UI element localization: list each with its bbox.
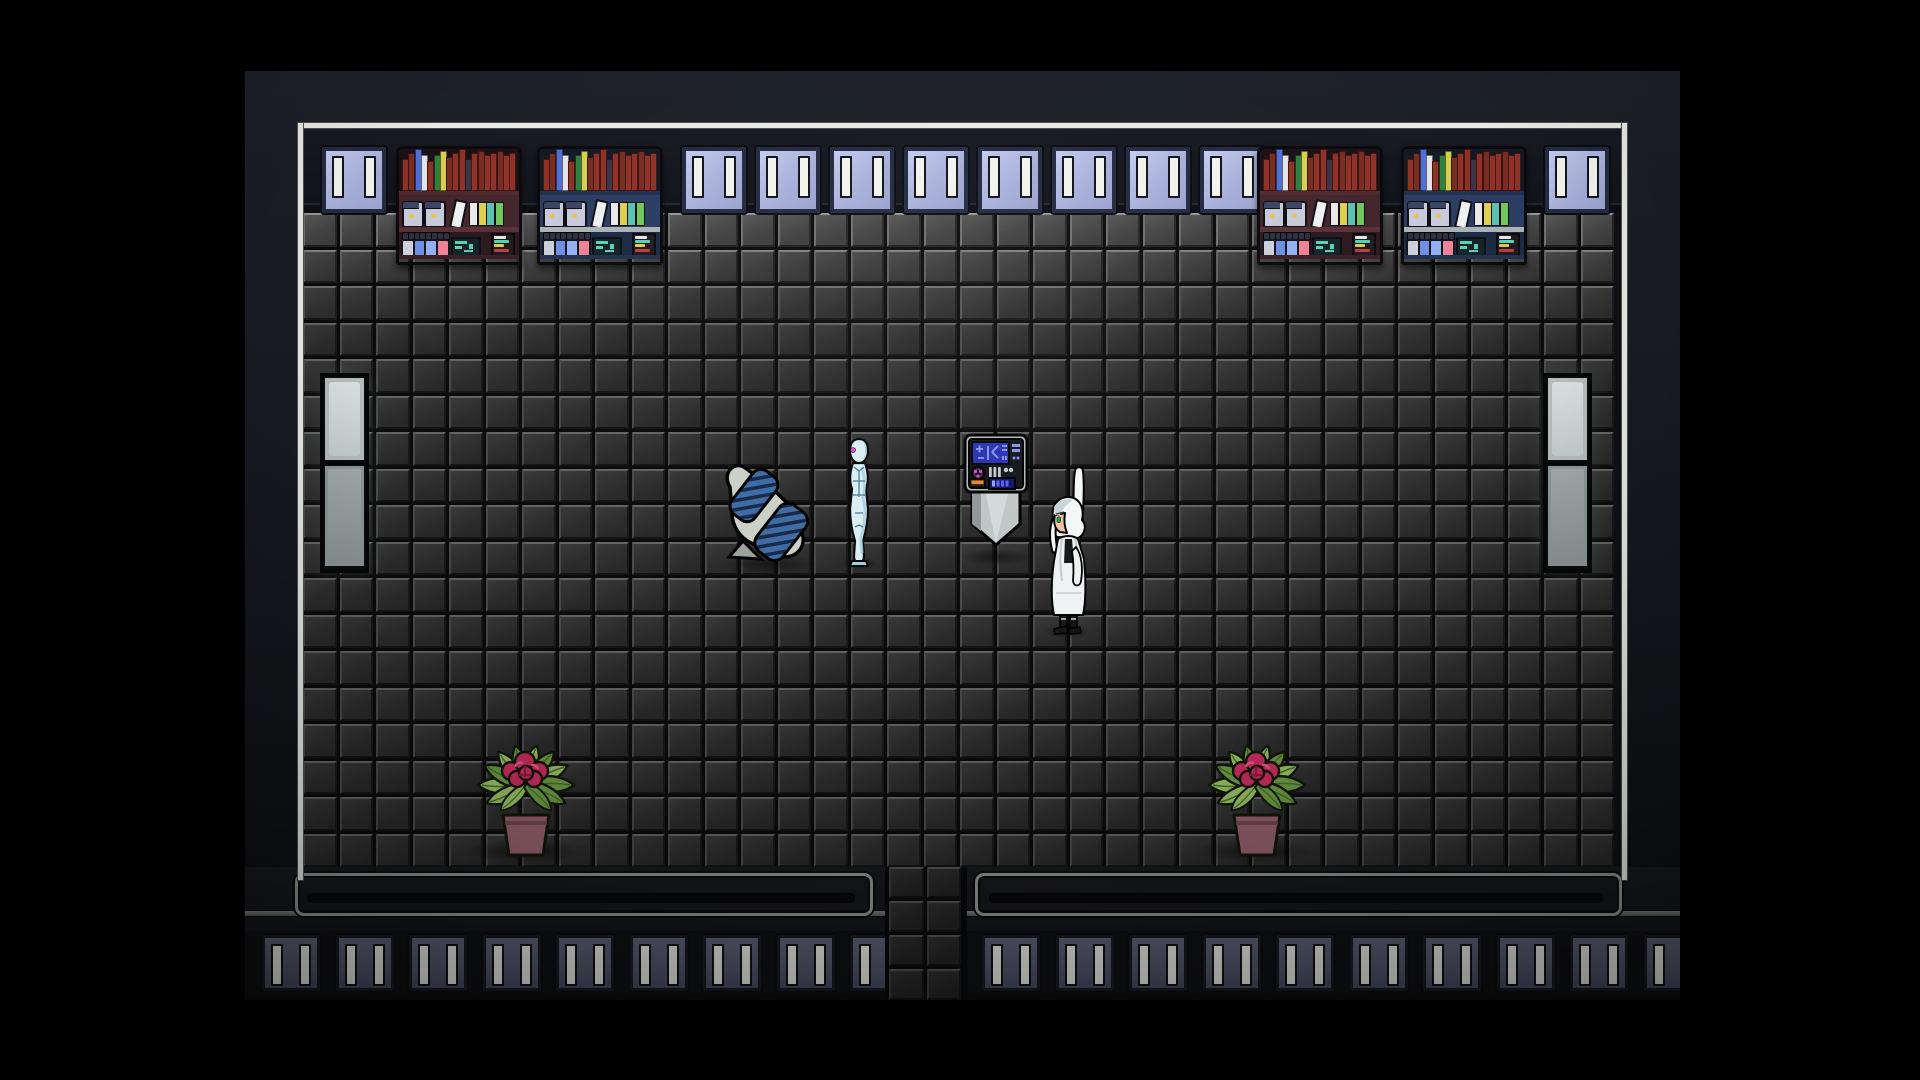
floor-tile: [778, 286, 812, 320]
panel-slit: [373, 944, 385, 986]
floor-tile: [1325, 359, 1359, 393]
floor-tile: [741, 323, 775, 357]
floor-tile: [1033, 797, 1067, 831]
floor-tile: [1581, 834, 1615, 868]
book-spine: [495, 202, 504, 226]
floor-tile: [851, 651, 885, 685]
shelf-middle-row: [1404, 195, 1524, 227]
floor-tile: [632, 469, 666, 503]
circuit-trace: [610, 244, 614, 249]
floor-tile: [887, 761, 921, 795]
floor-tile: [595, 615, 629, 649]
floor-tile: [1435, 432, 1469, 466]
floor-tile: [1581, 761, 1615, 795]
circuit-trace: [1330, 244, 1334, 249]
light-glow-dim: [328, 469, 361, 563]
floor-tile: [1179, 688, 1213, 722]
light-segment-dim: [1548, 466, 1587, 566]
leaning-book: [449, 199, 468, 230]
floor-tile: [303, 323, 337, 357]
circuit-trace: [1325, 250, 1334, 252]
floor-tile: [1508, 359, 1542, 393]
floor-tile: [522, 615, 556, 649]
floor-tile: [632, 724, 666, 758]
bookshelf-blue[interactable]: [1401, 146, 1527, 265]
window-slit: [1555, 156, 1567, 198]
floor-tile: [1508, 615, 1542, 649]
window-slit: [332, 156, 344, 198]
floor-tile: [1070, 688, 1104, 722]
floor-tile: [1362, 469, 1396, 503]
floor-tile: [449, 651, 483, 685]
floor-tile: [413, 615, 447, 649]
floor-tile: [486, 286, 520, 320]
floor-tile: [1289, 286, 1323, 320]
floor-tile: [1325, 578, 1359, 612]
specimen-jar: [543, 201, 565, 228]
circuit-board-item: [451, 237, 481, 257]
floor-tile: [1362, 688, 1396, 722]
floor-tile: [1106, 761, 1140, 795]
floor-tile: [814, 578, 848, 612]
recliner-chair[interactable]: [713, 451, 818, 569]
room-trim-left: [298, 123, 303, 880]
jar-label-dot: [431, 214, 436, 218]
floor-tile: [851, 396, 885, 430]
floor-tile: [705, 396, 739, 430]
floor-tile: [997, 688, 1031, 722]
floor-tile: [1106, 724, 1140, 758]
floor-tile: [668, 651, 702, 685]
floor-tile: [997, 797, 1031, 831]
jar-lid: [1264, 202, 1280, 209]
floor-tile: [668, 615, 702, 649]
leaning-book: [1310, 199, 1329, 230]
floor-tile: [668, 505, 702, 539]
floor-tile: [814, 761, 848, 795]
floor-tile: [376, 432, 410, 466]
floor-tile: [522, 542, 556, 576]
floor-tile: [559, 542, 593, 576]
floor-tile: [522, 651, 556, 685]
floor-tile: [889, 867, 924, 898]
floor-tile: [449, 286, 483, 320]
floor-tile: [814, 213, 848, 247]
floor-tile: [1435, 396, 1469, 430]
floor-tile: [1143, 505, 1177, 539]
floor-tile: [1435, 688, 1469, 722]
floor-tile: [1106, 651, 1140, 685]
panel-slit: [271, 944, 283, 986]
floor-tile: [1289, 615, 1323, 649]
floor-tile: [632, 542, 666, 576]
floor-tile: [522, 323, 556, 357]
floor-tile: [559, 651, 593, 685]
baseboard-slat-panel: [556, 935, 614, 991]
floor-tile: [559, 615, 593, 649]
panel-slit: [1607, 944, 1619, 986]
floor-tile: [924, 432, 958, 466]
floor-tile: [303, 615, 337, 649]
floor-tile: [1033, 761, 1067, 795]
stack-strip: [1355, 236, 1367, 239]
floor-tile: [1508, 505, 1542, 539]
book-spine: [1370, 153, 1377, 191]
floor-tile: [741, 213, 775, 247]
panel-slit: [1653, 944, 1665, 986]
window-slit: [914, 156, 926, 198]
floor-tile: [303, 286, 337, 320]
floor-tile: [486, 542, 520, 576]
floor-tile: [1581, 286, 1615, 320]
book-spine: [1356, 202, 1365, 226]
floor-tile: [705, 359, 739, 393]
floor-tile: [1216, 469, 1250, 503]
baseboard-slat-panel: [1570, 935, 1628, 991]
floor-tile: [1581, 578, 1615, 612]
floor-tile: [1033, 286, 1067, 320]
circuit-board-item: [1456, 237, 1486, 257]
floor-tile: [559, 688, 593, 722]
floor-tile: [1143, 213, 1177, 247]
panel-slit: [1093, 944, 1105, 986]
floor-tile: [778, 688, 812, 722]
floor-tile: [449, 359, 483, 393]
stack-strip: [494, 244, 504, 247]
floor-tile: [1508, 286, 1542, 320]
floor-tile: [1289, 505, 1323, 539]
floor-tile: [960, 250, 994, 284]
circuit-trace: [464, 250, 473, 252]
floor-tile: [413, 323, 447, 357]
floor-tile: [741, 396, 775, 430]
floor-tile: [1544, 323, 1578, 357]
floor-tile: [705, 688, 739, 722]
floor-tile: [1143, 469, 1177, 503]
floor-tile: [413, 797, 447, 831]
panel-slit: [565, 944, 577, 986]
floor-tile: [1252, 615, 1286, 649]
floor-tile: [889, 969, 924, 1000]
floor-tile: [340, 578, 374, 612]
terminal-console[interactable]: [959, 432, 1033, 564]
floor-tile: [486, 651, 520, 685]
floor-tile: [668, 250, 702, 284]
floor-tile: [1143, 761, 1177, 795]
floor-tile: [1325, 323, 1359, 357]
floor-tile: [960, 396, 994, 430]
panel-slit: [991, 944, 1003, 986]
scientist-npc[interactable]: [1042, 463, 1092, 637]
floor-tile: [1471, 542, 1505, 576]
jar-label-dot: [409, 214, 414, 218]
floor-tile: [632, 578, 666, 612]
floor-tile: [1544, 286, 1578, 320]
floor-tile: [924, 542, 958, 576]
floor-tile: [1216, 505, 1250, 539]
light-glow: [329, 382, 360, 456]
floor-tile: [340, 615, 374, 649]
floor-tile: [1179, 505, 1213, 539]
circuit-board-item: [1312, 237, 1342, 257]
panel-slit: [639, 944, 651, 986]
floor-tile: [927, 969, 962, 1000]
stack-strip: [494, 240, 509, 243]
floor-tile: [1325, 615, 1359, 649]
panel-slit: [814, 944, 826, 986]
floor-tile: [1070, 396, 1104, 430]
floor-tile: [1143, 578, 1177, 612]
floor-tile: [1179, 250, 1213, 284]
floor-tile: [705, 761, 739, 795]
floor-tile: [1435, 761, 1469, 795]
floor-tile: [1179, 359, 1213, 393]
floor-tile: [1033, 688, 1067, 722]
floor-tile: [340, 323, 374, 357]
shelf-books-row: [1404, 149, 1524, 191]
floor-tile: [1508, 797, 1542, 831]
bookshelf-redwood[interactable]: [1257, 146, 1383, 265]
book-spine: [627, 202, 636, 226]
floor-tile: [887, 432, 921, 466]
baseboard-slat-panel: [1423, 935, 1481, 991]
floor-tile: [340, 286, 374, 320]
floor-tile: [340, 213, 374, 247]
south-exit-corridor[interactable]: [889, 867, 961, 1000]
wall-window-panel: [830, 147, 894, 213]
floor-tile: [741, 578, 775, 612]
jar-lid: [1430, 202, 1446, 209]
floor-tile: [1216, 286, 1250, 320]
floor-tile: [778, 615, 812, 649]
book-spine: [509, 153, 516, 191]
panel-slit: [1240, 944, 1252, 986]
floor-tile: [303, 578, 337, 612]
floor-tile: [303, 834, 337, 868]
floor-tile: [559, 396, 593, 430]
floor-tile: [997, 724, 1031, 758]
floor-tile: [1070, 432, 1104, 466]
baseboard-slat-panel: [982, 935, 1040, 991]
floor-tile: [632, 505, 666, 539]
floor-tile: [486, 688, 520, 722]
floor-tile: [1216, 323, 1250, 357]
floor-tile: [1106, 834, 1140, 868]
floor-tile: [1508, 724, 1542, 758]
floor-tile: [413, 542, 447, 576]
window-slit: [872, 156, 884, 198]
panel-slit: [1359, 944, 1371, 986]
floor-tile: [887, 834, 921, 868]
floor-tile: [522, 432, 556, 466]
floor-tile: [668, 323, 702, 357]
floor-tile: [1070, 797, 1104, 831]
android-npc[interactable]: [842, 437, 876, 567]
floor-tile: [1581, 724, 1615, 758]
floor-tile: [632, 286, 666, 320]
leaning-book: [590, 199, 609, 230]
floor-tile: [1289, 396, 1323, 430]
floor-tile: [1471, 651, 1505, 685]
floor-tile: [303, 797, 337, 831]
floor-tile: [1398, 432, 1432, 466]
floor-tile: [1252, 688, 1286, 722]
baseboard-stripe: [307, 893, 855, 903]
stack-strip: [1499, 249, 1514, 252]
floor-tile: [303, 688, 337, 722]
floor-tile: [1033, 396, 1067, 430]
floor-tile: [851, 615, 885, 649]
floor-tile: [1252, 432, 1286, 466]
floor-right-gap: [1614, 213, 1622, 867]
floor-tile: [1216, 542, 1250, 576]
floor-tile: [887, 505, 921, 539]
south-wall-left: [245, 867, 885, 1000]
floor-tile: [887, 396, 921, 430]
floor-tile: [376, 505, 410, 539]
floor-tile: [449, 542, 483, 576]
panel-slit: [418, 944, 430, 986]
bookshelf-redwood[interactable]: [396, 146, 522, 265]
floor-tile: [851, 250, 885, 284]
floor-tile: [376, 469, 410, 503]
floor-tile: [1106, 286, 1140, 320]
stack-strip: [1355, 240, 1370, 243]
baseboard-slat-panel: [777, 935, 835, 991]
floor-tile: [1544, 213, 1578, 247]
floor-tile: [413, 834, 447, 868]
panel-slit: [1506, 944, 1518, 986]
floor-tile: [1106, 542, 1140, 576]
jar-label-dot: [550, 214, 555, 218]
floor-tile: [1398, 542, 1432, 576]
floor-tile: [814, 615, 848, 649]
floor-tile: [1179, 432, 1213, 466]
floor-tile: [668, 469, 702, 503]
floor-tile: [413, 286, 447, 320]
window-slit: [364, 156, 376, 198]
floor-tile: [1398, 505, 1432, 539]
window-slit: [946, 156, 958, 198]
floor-tile: [741, 724, 775, 758]
floor-tile: [814, 724, 848, 758]
floor-tile: [1544, 651, 1578, 685]
floor-tile: [887, 213, 921, 247]
light-divider: [325, 462, 364, 465]
floor-tile: [741, 286, 775, 320]
floor-tile: [887, 286, 921, 320]
floor-tile: [814, 651, 848, 685]
floor-tile: [889, 935, 924, 966]
floor-tile: [705, 286, 739, 320]
floor-tile: [960, 359, 994, 393]
floor-tile: [1143, 651, 1177, 685]
floor-tile: [1289, 469, 1323, 503]
floor-tile: [1106, 505, 1140, 539]
floor-tile: [927, 935, 962, 966]
floor-tile: [960, 323, 994, 357]
floor-tile: [413, 469, 447, 503]
floor-tile: [778, 323, 812, 357]
floor-tile: [1362, 797, 1396, 831]
floor-tile: [1070, 213, 1104, 247]
window-slit: [1094, 156, 1106, 198]
baseboard-slat-panel: [262, 935, 320, 991]
floor-tile: [1143, 396, 1177, 430]
bookshelf-blue[interactable]: [537, 146, 663, 265]
floor-tile: [1179, 396, 1213, 430]
panel-slit: [1460, 944, 1472, 986]
floor-tile: [851, 797, 885, 831]
floor-tile: [1544, 724, 1578, 758]
floor-tile: [851, 578, 885, 612]
floor-tile: [1435, 797, 1469, 831]
floor-tile: [595, 432, 629, 466]
floor-tile: [1143, 250, 1177, 284]
floor-tile: [1179, 542, 1213, 576]
stack-strip: [635, 236, 647, 239]
window-slit: [840, 156, 852, 198]
floor-tile: [1471, 286, 1505, 320]
floor-tile: [924, 286, 958, 320]
floor-tile: [741, 651, 775, 685]
floor-tile: [1216, 213, 1250, 247]
floor-tile: [1362, 323, 1396, 357]
floor-tile: [960, 688, 994, 722]
panel-slit: [1065, 944, 1077, 986]
panel-slit: [1432, 944, 1444, 986]
floor-tile: [1070, 359, 1104, 393]
baseboard-slat-panel: [336, 935, 394, 991]
floor-tile: [778, 359, 812, 393]
floor-tile: [1033, 834, 1067, 868]
floor-tile: [741, 797, 775, 831]
floor-tile: [1508, 469, 1542, 503]
floor-tile: [851, 213, 885, 247]
floor-tile: [1070, 761, 1104, 795]
floor-tile: [1143, 323, 1177, 357]
panel-slit: [1285, 944, 1297, 986]
floor-tile: [1362, 286, 1396, 320]
floor-tile: [741, 250, 775, 284]
wall-window-panel: [1200, 147, 1264, 213]
circuit-trace: [469, 244, 473, 249]
book-spine: [610, 202, 619, 226]
floor-tile: [887, 797, 921, 831]
wall-window-panel: [978, 147, 1042, 213]
circuit-trace: [455, 241, 467, 244]
jar-lid: [403, 202, 419, 209]
floor-tile: [814, 359, 848, 393]
floor-tile: [924, 469, 958, 503]
floor-tile: [887, 724, 921, 758]
floor-tile: [1179, 286, 1213, 320]
floor-tile: [1289, 651, 1323, 685]
floor-tile: [814, 286, 848, 320]
floor-tile: [997, 359, 1031, 393]
floor-tile: [303, 250, 337, 284]
floor-tile: [705, 323, 739, 357]
floor-tile: [887, 250, 921, 284]
floor-tile: [851, 724, 885, 758]
floor-tile: [1398, 724, 1432, 758]
floor-tile: [1398, 396, 1432, 430]
floor-tile: [340, 761, 374, 795]
floor-tile: [997, 213, 1031, 247]
floor-tile: [668, 578, 702, 612]
specimen-jar: [1285, 201, 1307, 228]
floor-tile: [595, 286, 629, 320]
